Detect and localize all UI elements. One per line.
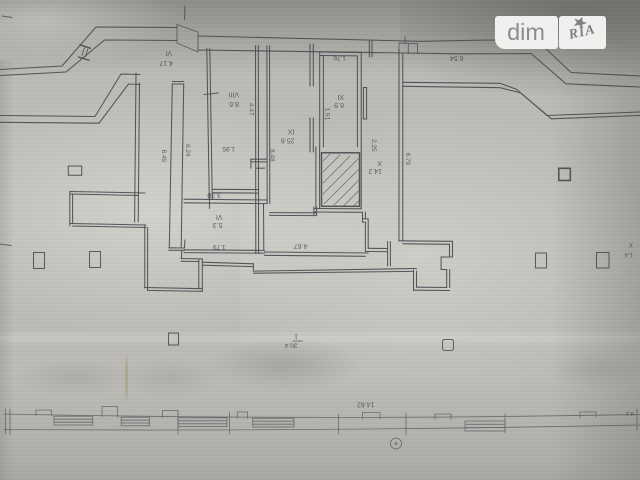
svg-text:XI: XI	[337, 93, 344, 100]
svg-text:3.1: 3.1	[625, 410, 634, 416]
svg-text:8.6: 8.6	[229, 100, 239, 107]
svg-text:IX: IX	[288, 128, 295, 135]
svg-text:1.79: 1.79	[212, 243, 225, 250]
svg-text:2.25: 2.25	[370, 139, 377, 152]
svg-text:1.95: 1.95	[222, 145, 235, 152]
svg-text:VI: VI	[216, 213, 223, 220]
svg-text:8.49: 8.49	[160, 150, 167, 163]
svg-text:6.9: 6.9	[334, 101, 344, 108]
svg-text:4.67: 4.67	[294, 242, 308, 249]
svg-text:4.47: 4.47	[248, 103, 255, 116]
svg-text:1.76: 1.76	[333, 54, 346, 61]
svg-text:14.2: 14.2	[368, 167, 382, 174]
svg-text:6.54: 6.54	[450, 54, 464, 61]
svg-text:14.62: 14.62	[357, 401, 375, 408]
svg-text:VI: VI	[165, 49, 172, 56]
svg-text:6.79: 6.79	[404, 153, 411, 166]
svg-text:8.48: 8.48	[269, 149, 276, 162]
svg-text:30.4: 30.4	[284, 342, 297, 349]
svg-text:5.3: 5.3	[213, 221, 223, 228]
svg-text:VIII: VIII	[228, 91, 239, 98]
svg-text:6.24: 6.24	[184, 144, 191, 157]
svg-text:1: 1	[294, 333, 298, 340]
svg-text:1.91: 1.91	[324, 108, 331, 121]
svg-text:X: X	[629, 241, 633, 247]
svg-text:X: X	[377, 159, 382, 166]
svg-text:4.17: 4.17	[159, 59, 173, 66]
svg-text:3.30: 3.30	[207, 191, 221, 198]
svg-text:25.6: 25.6	[281, 137, 295, 144]
svg-text:1.4: 1.4	[624, 251, 633, 257]
